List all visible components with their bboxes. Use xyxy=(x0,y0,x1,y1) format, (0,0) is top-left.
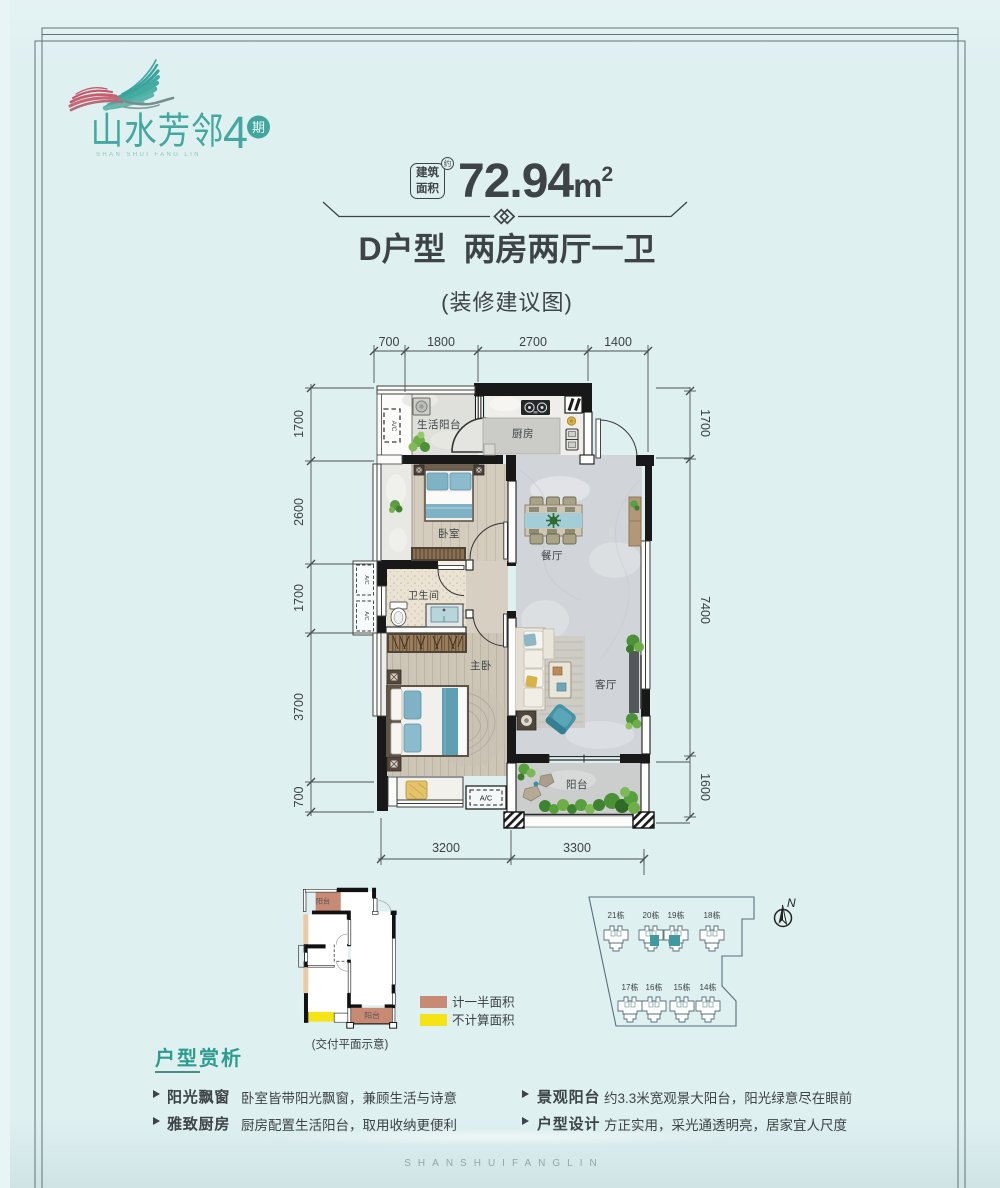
svg-text:14栋: 14栋 xyxy=(700,982,717,992)
svg-text:18栋: 18栋 xyxy=(704,910,721,920)
svg-text:17栋: 17栋 xyxy=(622,982,639,992)
svg-text:A/C: A/C xyxy=(363,575,369,584)
svg-text:卫生间: 卫生间 xyxy=(408,589,440,602)
svg-text:主卧: 主卧 xyxy=(470,659,492,672)
svg-text:7400: 7400 xyxy=(698,596,712,624)
svg-text:3300: 3300 xyxy=(563,841,591,855)
svg-text:(交付平面示意): (交付平面示意) xyxy=(312,1037,389,1051)
svg-text:1700: 1700 xyxy=(292,410,306,438)
svg-text:N: N xyxy=(787,896,796,910)
svg-text:19栋: 19栋 xyxy=(668,910,685,920)
svg-text:1700: 1700 xyxy=(698,409,712,437)
svg-text:15栋: 15栋 xyxy=(674,982,691,992)
svg-text:阳台: 阳台 xyxy=(566,778,588,791)
svg-text:不计算面积: 不计算面积 xyxy=(452,1013,515,1028)
svg-text:1600: 1600 xyxy=(698,773,712,801)
svg-text:计一半面积: 计一半面积 xyxy=(452,996,515,1010)
svg-text:1400: 1400 xyxy=(604,335,632,349)
svg-text:16栋: 16栋 xyxy=(646,982,663,992)
svg-text:700: 700 xyxy=(292,787,306,808)
svg-text:A/C: A/C xyxy=(390,421,397,432)
svg-text:2700: 2700 xyxy=(519,335,547,349)
svg-text:餐厅: 餐厅 xyxy=(541,549,563,562)
svg-text:20栋: 20栋 xyxy=(643,910,660,920)
svg-text:A/C: A/C xyxy=(363,611,369,620)
svg-text:客厅: 客厅 xyxy=(595,678,617,691)
svg-text:3200: 3200 xyxy=(432,841,460,855)
svg-text:21栋: 21栋 xyxy=(608,910,625,920)
svg-text:1800: 1800 xyxy=(427,335,455,349)
svg-text:1700: 1700 xyxy=(292,584,306,612)
svg-text:2600: 2600 xyxy=(292,498,306,526)
svg-text:厨房: 厨房 xyxy=(512,427,534,440)
svg-text:A/C: A/C xyxy=(480,794,493,803)
svg-text:700: 700 xyxy=(379,335,400,349)
svg-text:阳台: 阳台 xyxy=(364,1010,380,1020)
svg-text:生活阳台: 生活阳台 xyxy=(417,418,461,431)
svg-text:3700: 3700 xyxy=(292,693,306,721)
svg-text:阳台: 阳台 xyxy=(316,897,331,906)
svg-text:卧室: 卧室 xyxy=(438,527,460,540)
